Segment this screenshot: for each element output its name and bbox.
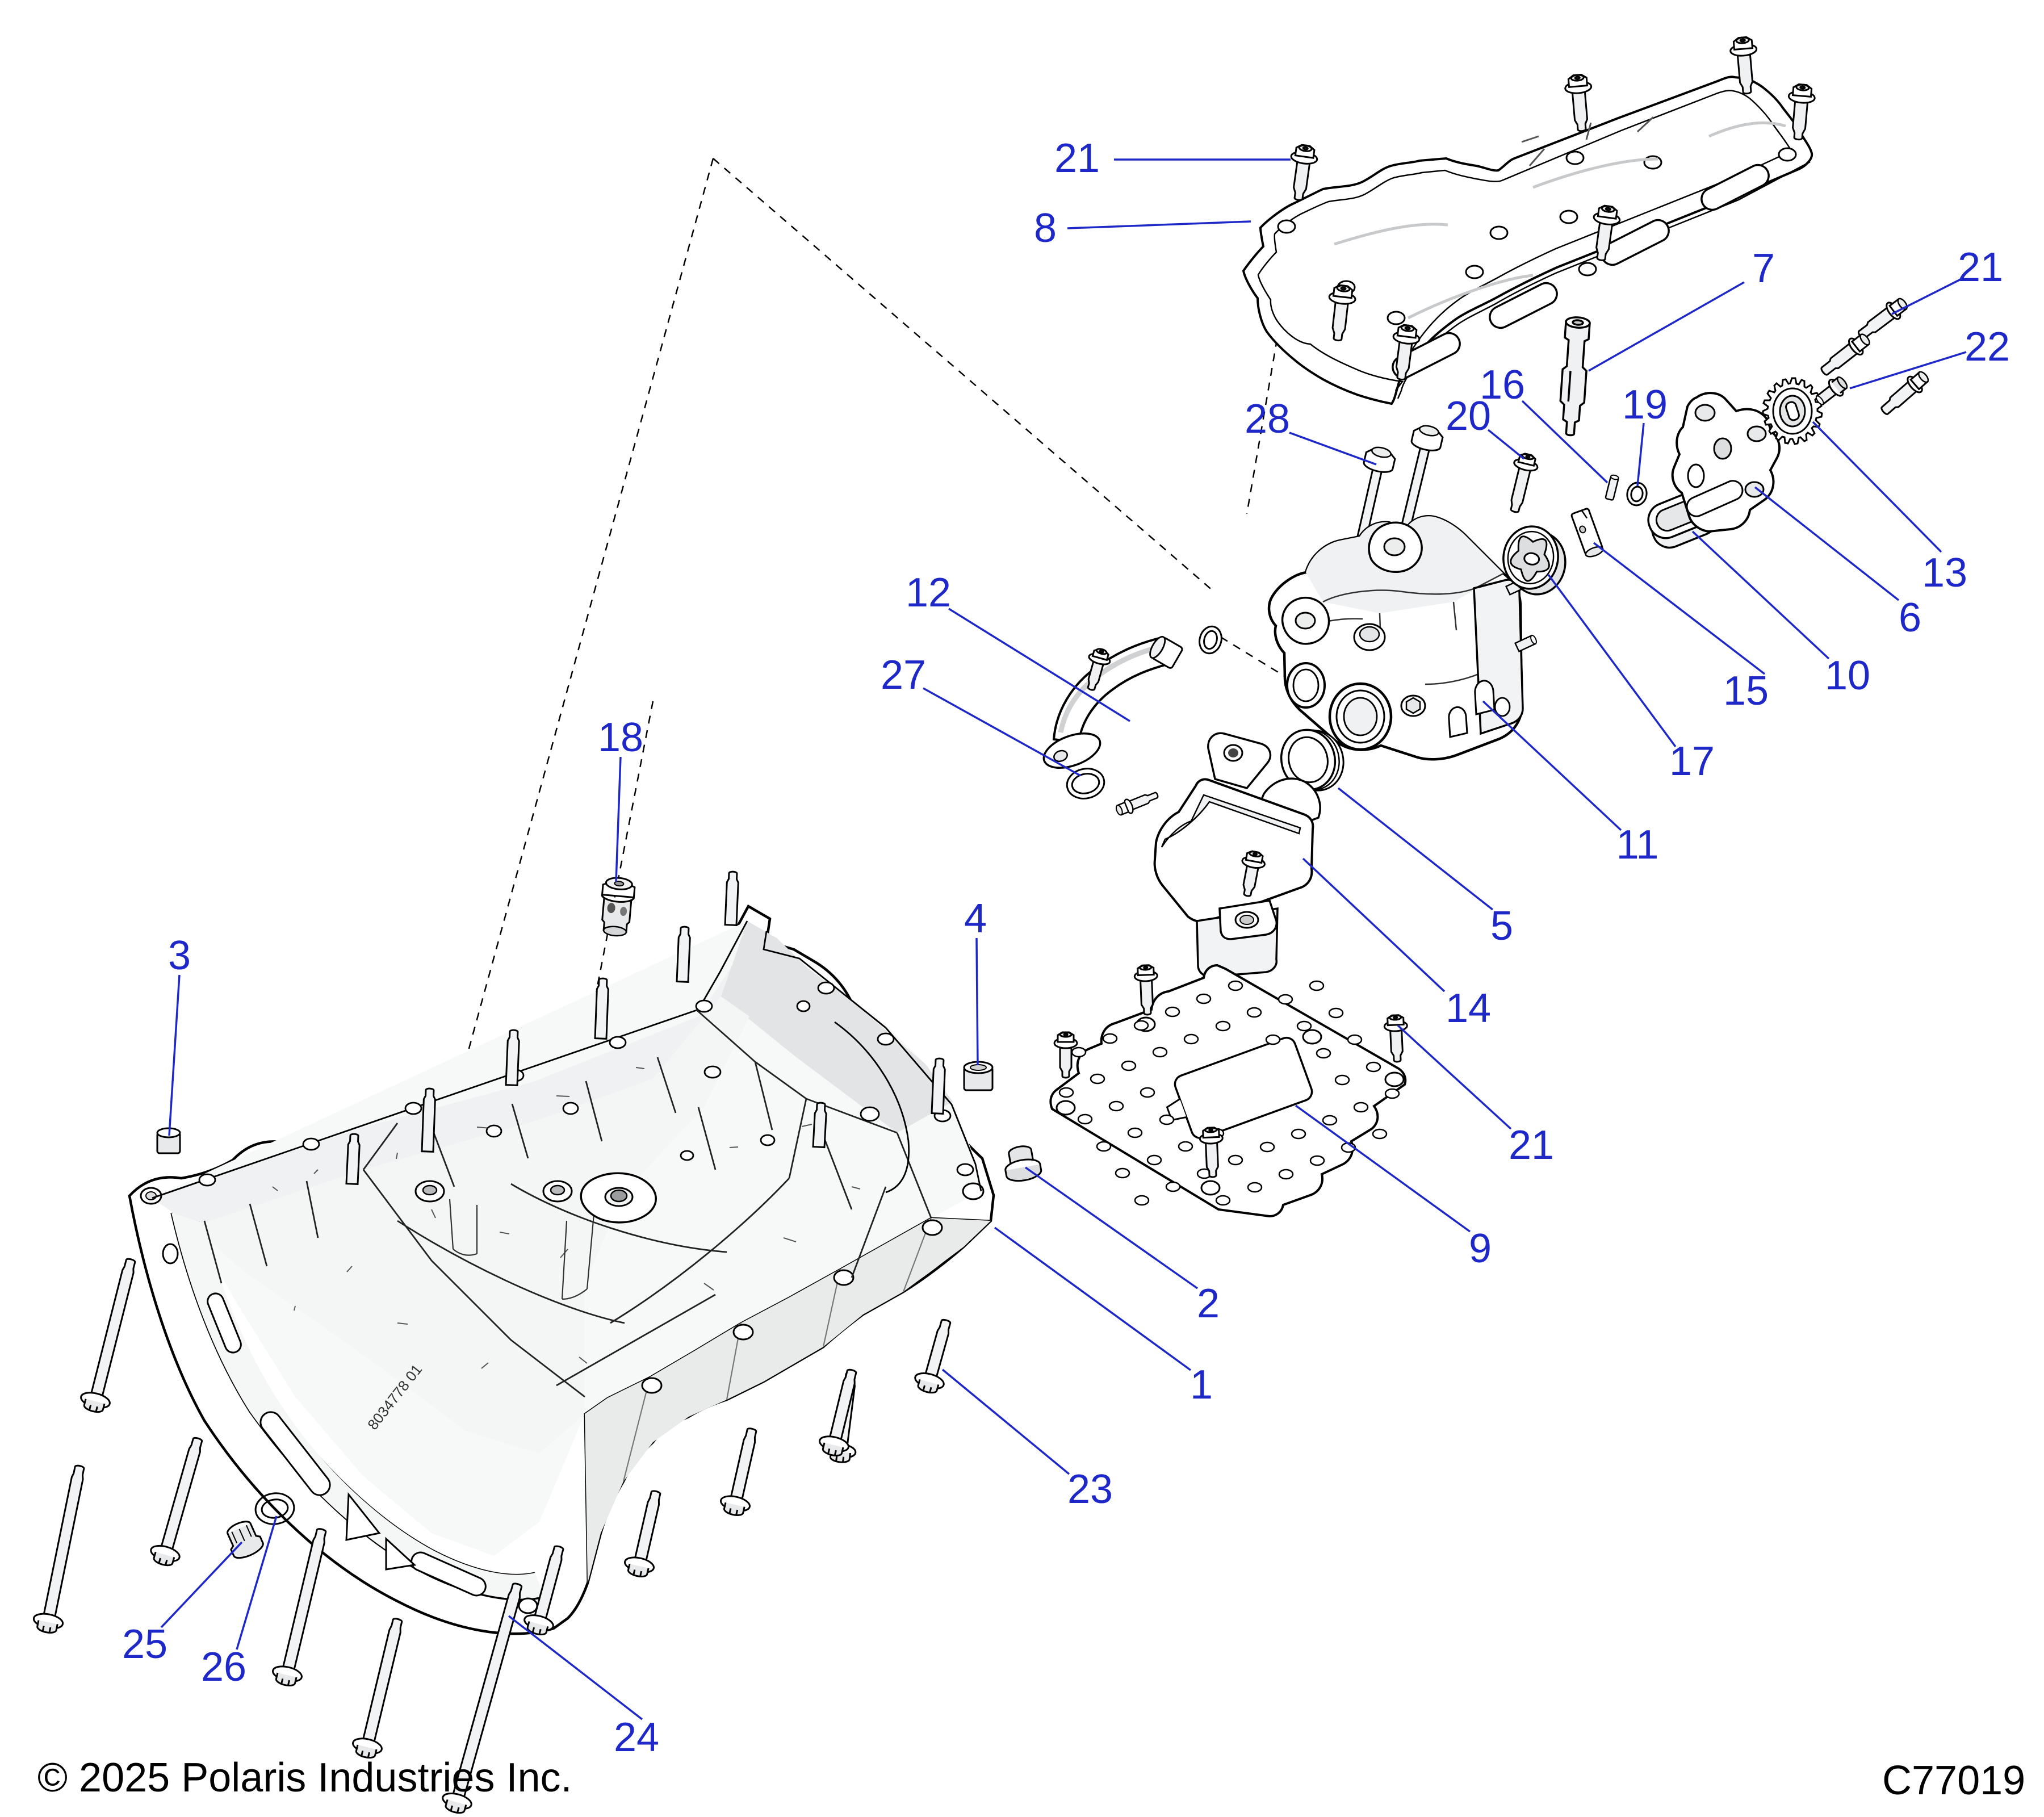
svg-text:© 2025 Polaris Industries Inc.: © 2025 Polaris Industries Inc. (37, 1755, 572, 1801)
svg-text:4: 4 (964, 896, 987, 941)
svg-text:7: 7 (1752, 246, 1775, 291)
svg-text:2: 2 (1197, 1281, 1220, 1326)
svg-text:21: 21 (1054, 136, 1100, 181)
svg-text:3: 3 (168, 933, 191, 978)
svg-text:23: 23 (1067, 1467, 1113, 1512)
svg-text:17: 17 (1669, 739, 1715, 784)
svg-text:26: 26 (201, 1644, 246, 1690)
svg-text:28: 28 (1245, 396, 1290, 442)
svg-text:14: 14 (1446, 986, 1491, 1031)
svg-text:25: 25 (122, 1622, 167, 1667)
svg-text:10: 10 (1825, 653, 1870, 698)
svg-text:15: 15 (1723, 668, 1769, 714)
svg-text:27: 27 (881, 652, 926, 698)
svg-text:1: 1 (1190, 1362, 1213, 1408)
svg-text:6: 6 (1899, 595, 1921, 640)
svg-text:12: 12 (906, 570, 951, 616)
svg-text:5: 5 (1490, 903, 1513, 949)
svg-text:13: 13 (1922, 550, 1967, 596)
svg-text:22: 22 (1965, 324, 2010, 370)
svg-text:18: 18 (598, 715, 643, 760)
svg-text:C77019: C77019 (1882, 1758, 2025, 1803)
svg-text:9: 9 (1469, 1226, 1492, 1271)
svg-text:20: 20 (1446, 393, 1491, 439)
svg-text:11: 11 (1616, 822, 1659, 868)
svg-text:21: 21 (1509, 1123, 1554, 1168)
svg-text:19: 19 (1622, 382, 1668, 428)
svg-text:24: 24 (614, 1715, 659, 1760)
svg-text:8: 8 (1034, 206, 1057, 251)
svg-text:21: 21 (1958, 245, 2003, 290)
